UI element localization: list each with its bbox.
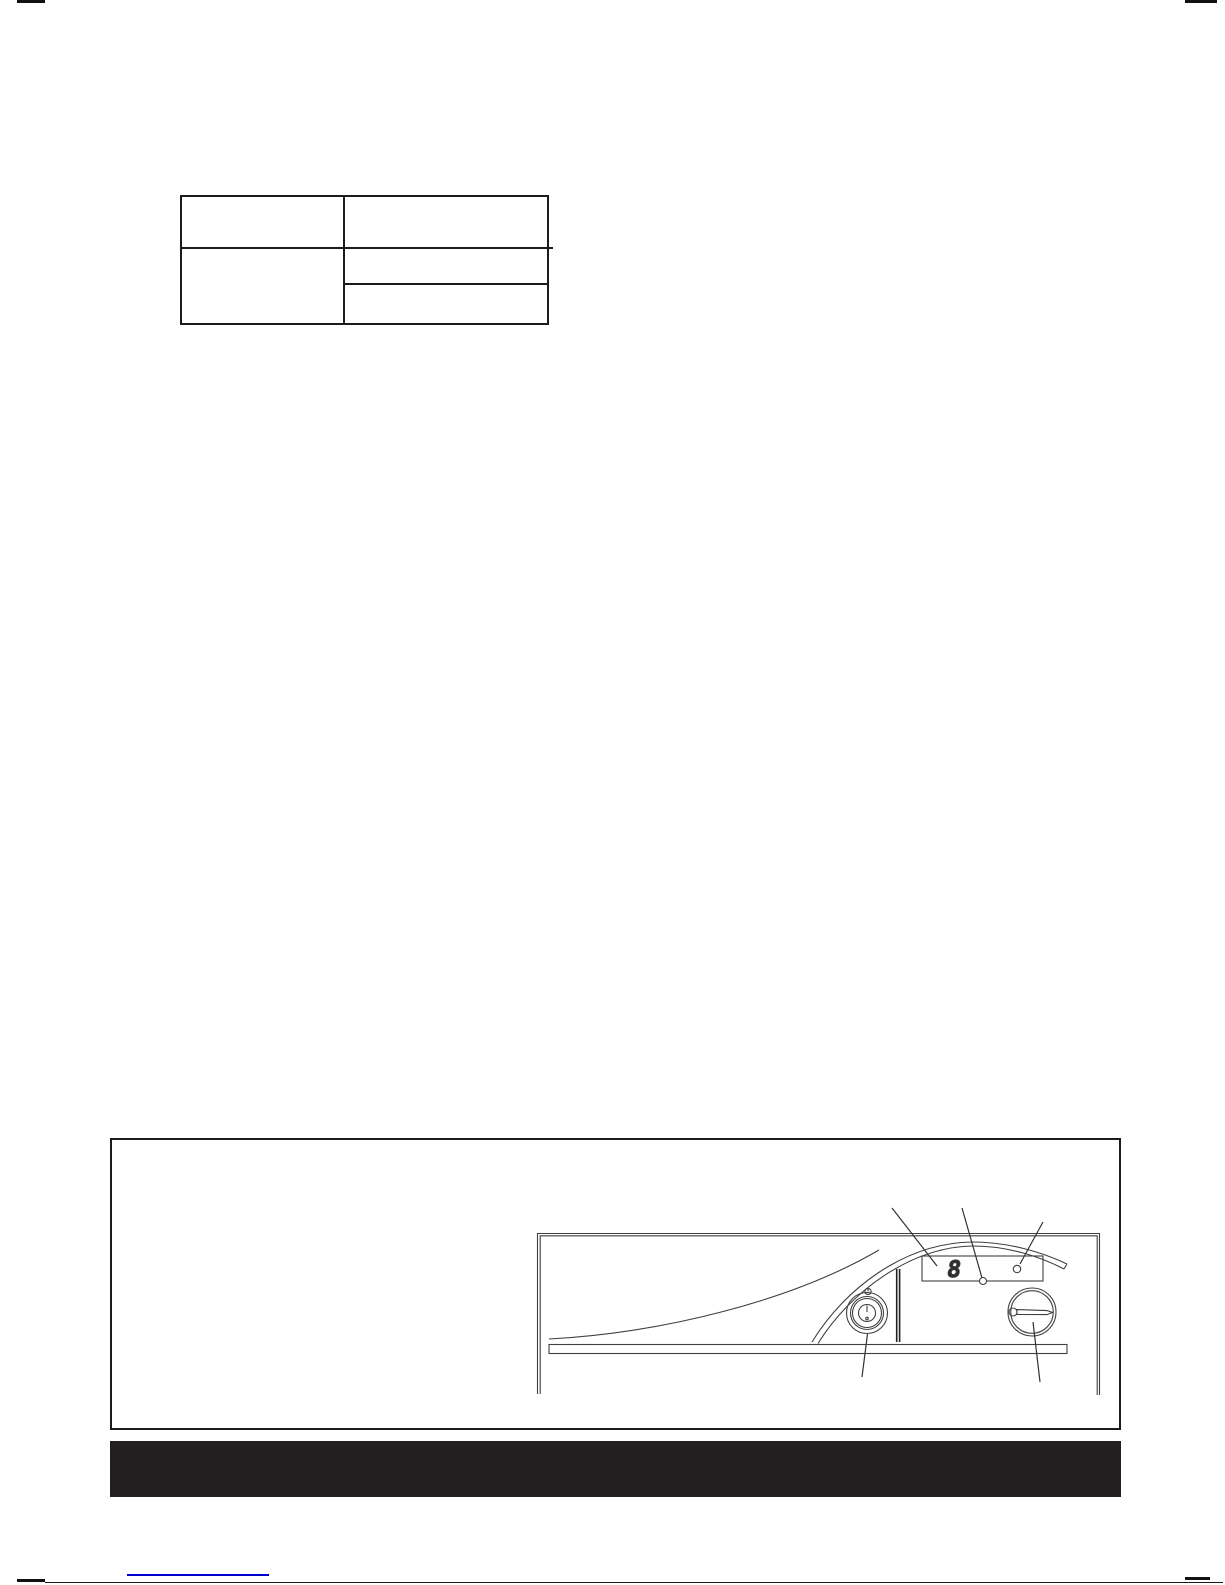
selector-knob xyxy=(1008,1288,1056,1336)
leader-line-knob xyxy=(1033,1322,1040,1382)
leader-line-led xyxy=(962,1208,982,1278)
arch-band-outer xyxy=(812,1242,1067,1342)
knob-slot xyxy=(1017,1310,1053,1315)
indicator-lamp xyxy=(1013,1265,1020,1272)
leader-lines xyxy=(862,1208,1043,1382)
control-panel-drawing: 8 xyxy=(538,1208,1100,1395)
page-edge-mark-bottom-left xyxy=(17,1579,45,1582)
display-digit: 8 xyxy=(945,1257,962,1283)
figure-line-art: 8 xyxy=(0,0,1225,1585)
power-off-dot xyxy=(866,1317,869,1320)
fascia-curve xyxy=(549,1250,879,1339)
page-boundary-line xyxy=(45,1582,1223,1584)
power-button xyxy=(847,1287,888,1333)
status-led xyxy=(980,1278,987,1285)
footer-bar xyxy=(110,1441,1121,1497)
bottom-rail xyxy=(549,1345,1067,1354)
leader-line-display xyxy=(892,1208,937,1266)
leader-line-power-button xyxy=(862,1334,868,1377)
seven-segment-display: 8 xyxy=(945,1257,962,1283)
page-edge-mark-bottom-right xyxy=(1185,1577,1210,1580)
hyperlink-underline[interactable] xyxy=(127,1574,269,1576)
panel-outline-outer xyxy=(538,1234,1100,1396)
divider-line xyxy=(897,1269,900,1342)
pdf-page: 8 xyxy=(0,0,1225,1585)
arch-band-endcap xyxy=(1064,1264,1067,1269)
